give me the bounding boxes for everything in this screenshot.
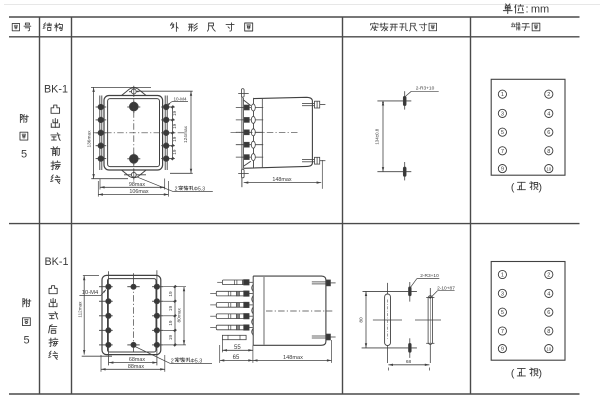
- svg-text:106max: 106max: [129, 189, 148, 195]
- svg-text:19: 19: [168, 291, 174, 297]
- svg-text:5: 5: [501, 130, 504, 136]
- svg-text:Φ5.3: Φ5.3: [191, 358, 203, 364]
- svg-text:2-R3+10: 2-R3+10: [416, 86, 435, 92]
- svg-text:55: 55: [234, 345, 241, 351]
- svg-text:19: 19: [172, 123, 177, 129]
- svg-text:19: 19: [172, 136, 177, 142]
- svg-text:10: 10: [546, 167, 551, 172]
- svg-text:10-M4: 10-M4: [173, 96, 186, 101]
- svg-text:5: 5: [21, 149, 27, 161]
- svg-text:134±0.8: 134±0.8: [374, 128, 379, 144]
- svg-text:BK-1: BK-1: [44, 256, 68, 268]
- svg-text:Φ5.3: Φ5.3: [194, 186, 205, 192]
- svg-text:19: 19: [168, 335, 174, 341]
- svg-text:112max: 112max: [77, 301, 82, 318]
- svg-text:(: (: [511, 181, 515, 193]
- svg-text:): ): [539, 368, 543, 380]
- svg-text:6: 6: [547, 310, 550, 316]
- svg-text:): ): [539, 181, 543, 193]
- svg-text:BK-1: BK-1: [44, 83, 68, 95]
- svg-text:19: 19: [172, 149, 177, 155]
- svg-text:68max: 68max: [129, 357, 145, 363]
- svg-text:148max: 148max: [283, 355, 303, 361]
- svg-text:8: 8: [547, 149, 550, 155]
- svg-text:19: 19: [168, 320, 174, 326]
- svg-text::: :: [525, 4, 528, 16]
- svg-text:1: 1: [501, 273, 504, 279]
- svg-text:19: 19: [172, 110, 177, 116]
- svg-text:148max: 148max: [272, 177, 291, 183]
- svg-text:88max: 88max: [128, 364, 144, 370]
- svg-text:4: 4: [547, 111, 550, 117]
- svg-text:3: 3: [501, 111, 504, 117]
- svg-text:80: 80: [359, 317, 365, 323]
- svg-text:6: 6: [547, 130, 550, 136]
- svg-text:68: 68: [406, 359, 412, 365]
- svg-text:(: (: [511, 368, 515, 380]
- svg-text:8: 8: [547, 329, 550, 335]
- svg-text:2: 2: [547, 273, 550, 279]
- svg-text:mm: mm: [531, 4, 549, 16]
- svg-text:10-M4: 10-M4: [82, 290, 99, 296]
- svg-text:1: 1: [501, 92, 504, 98]
- svg-text:5: 5: [23, 335, 29, 347]
- svg-text:80max: 80max: [177, 308, 183, 323]
- svg-text:136max: 136max: [86, 130, 92, 148]
- svg-text:65: 65: [233, 355, 240, 361]
- svg-text:124max: 124max: [183, 125, 189, 143]
- svg-text:2: 2: [171, 358, 174, 364]
- svg-text:7: 7: [501, 329, 504, 335]
- svg-text:2: 2: [175, 186, 178, 192]
- svg-text:9: 9: [501, 167, 504, 173]
- svg-text:4: 4: [547, 291, 550, 297]
- svg-text:9: 9: [501, 347, 504, 353]
- svg-text:3: 3: [501, 291, 504, 297]
- svg-text:19: 19: [168, 306, 174, 312]
- svg-text:98max: 98max: [129, 182, 145, 188]
- svg-text:2: 2: [547, 92, 550, 98]
- svg-text:10: 10: [546, 347, 551, 352]
- svg-text:7: 7: [501, 149, 504, 155]
- svg-text:5: 5: [501, 310, 504, 316]
